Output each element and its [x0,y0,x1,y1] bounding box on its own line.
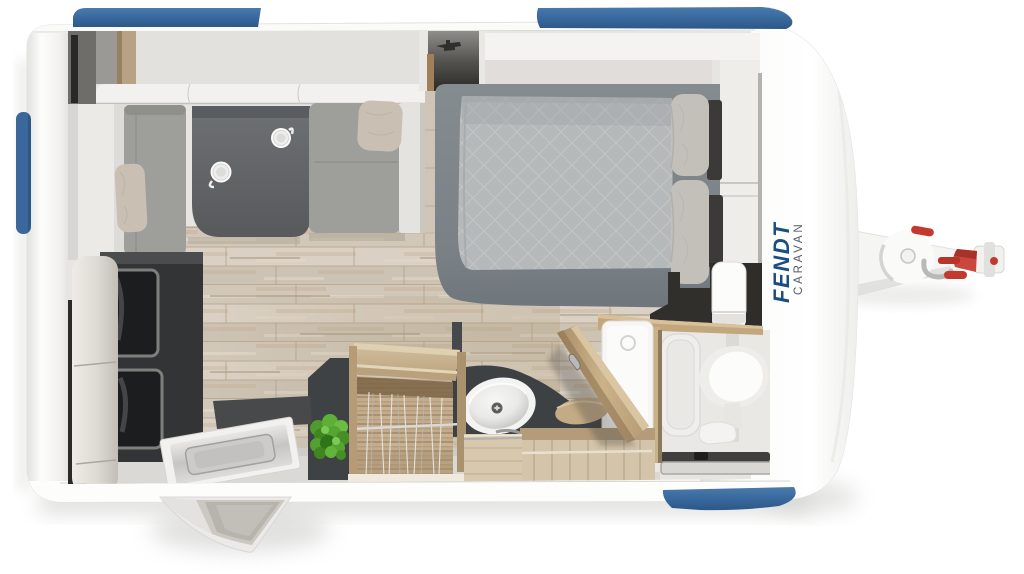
svg-text:CARAVAN: CARAVAN [793,222,805,296]
svg-text:FENDT: FENDT [769,222,794,303]
